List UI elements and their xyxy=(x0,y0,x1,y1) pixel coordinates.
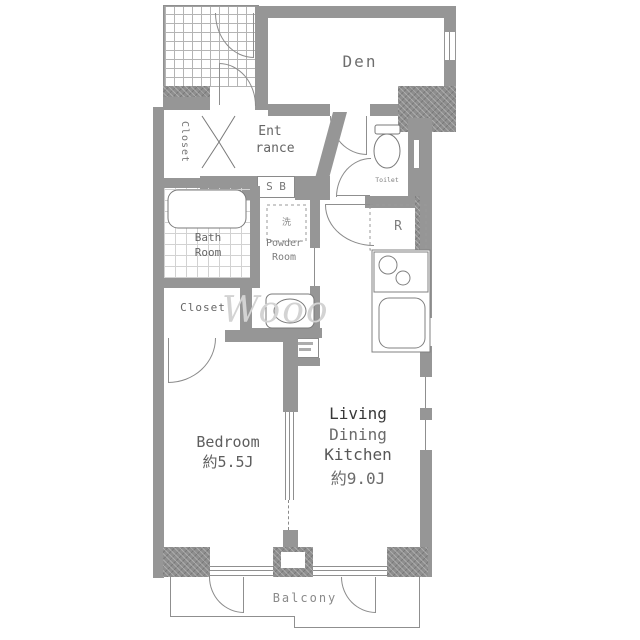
ldk-label-living: Living xyxy=(308,404,408,423)
refrigerator-label: R xyxy=(370,219,426,234)
bedroom-label: Bedroom xyxy=(178,433,278,451)
bathtub-icon xyxy=(168,190,246,228)
watermark: Wooo xyxy=(222,290,330,331)
balcony-label: Balcony xyxy=(265,591,345,605)
bath-label-line1: Bath xyxy=(180,231,236,244)
entrance-slanted-wall xyxy=(314,112,347,182)
toilet-label: Toilet xyxy=(363,176,411,184)
powder-label-line1: Powder xyxy=(258,238,310,249)
shoe-box-label: S B xyxy=(257,180,295,193)
closet-folding-door-icon xyxy=(219,116,235,168)
den-label: Den xyxy=(330,52,390,71)
ldk-label-dining: Dining xyxy=(308,425,408,444)
toilet-bowl-icon xyxy=(374,134,400,168)
entrance-label-line2: rance xyxy=(240,141,310,156)
washer-label: 洗 xyxy=(267,215,306,228)
closet-upper-label: Closet xyxy=(178,112,190,172)
ldk-size-label: 約9.0J xyxy=(308,465,408,489)
entrance-label-line1: Ent xyxy=(240,124,300,139)
floor-plan: Den Ent rance S B Closet Toilet Bath Roo… xyxy=(0,0,640,640)
toilet-tank-icon xyxy=(375,125,400,134)
bath-label-line2: Room xyxy=(180,246,236,259)
ldk-label-kitchen: Kitchen xyxy=(308,445,408,464)
closet-folding-door-icon xyxy=(202,116,219,168)
powder-label-line2: Room xyxy=(258,252,310,263)
bedroom-size-label: 約5.5J xyxy=(178,451,278,472)
